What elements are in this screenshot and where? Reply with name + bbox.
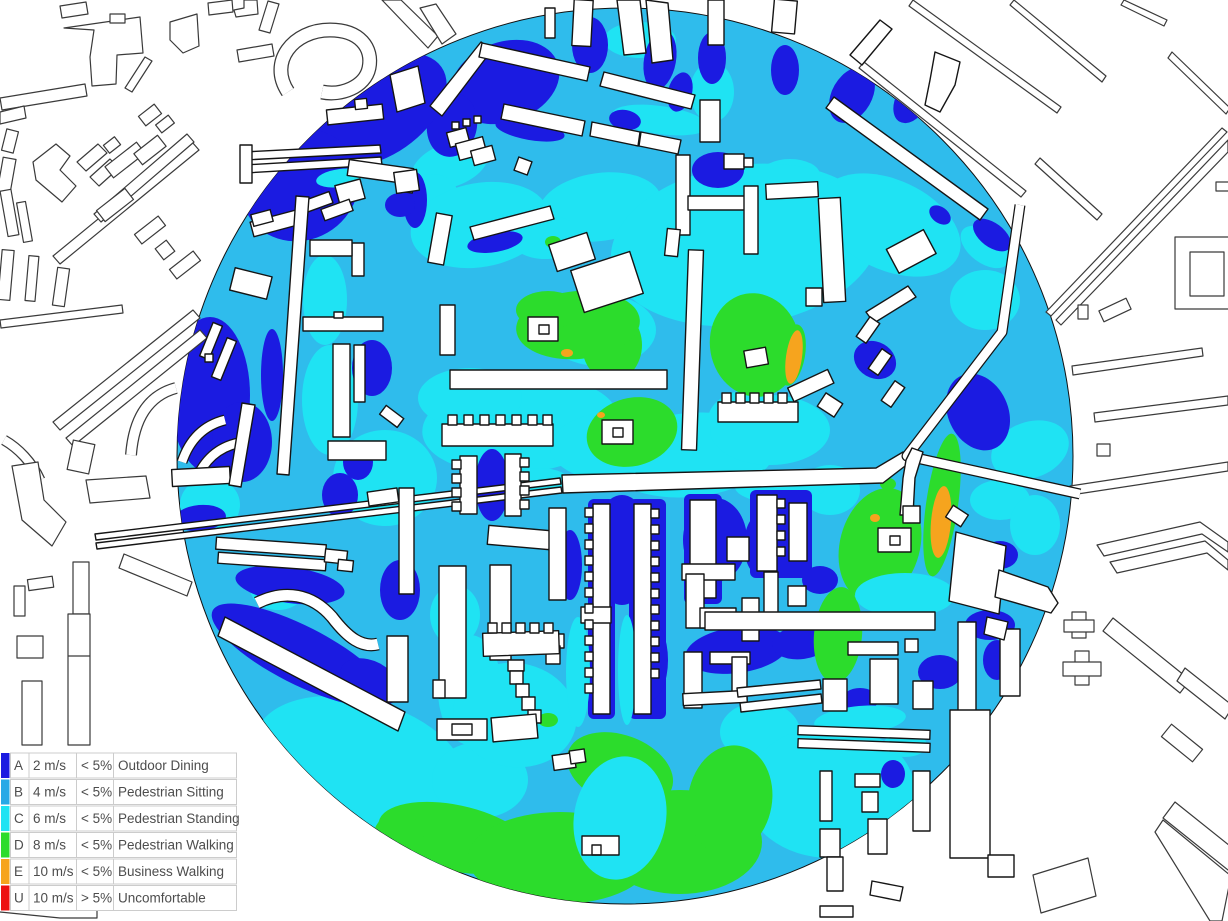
- svg-text:Pedestrian Walking: Pedestrian Walking: [118, 838, 234, 853]
- svg-text:8 m/s: 8 m/s: [33, 838, 66, 853]
- svg-text:Pedestrian Standing: Pedestrian Standing: [118, 811, 240, 826]
- svg-text:D: D: [14, 838, 24, 853]
- svg-text:A: A: [14, 758, 23, 773]
- svg-text:Outdoor Dining: Outdoor Dining: [118, 758, 209, 773]
- svg-text:< 5%: < 5%: [81, 811, 112, 826]
- svg-text:10 m/s: 10 m/s: [33, 891, 74, 906]
- svg-text:10 m/s: 10 m/s: [33, 864, 74, 879]
- svg-text:2 m/s: 2 m/s: [33, 758, 66, 773]
- svg-text:E: E: [14, 864, 23, 879]
- svg-text:< 5%: < 5%: [81, 758, 112, 773]
- svg-text:< 5%: < 5%: [81, 864, 112, 879]
- svg-text:Business Walking: Business Walking: [118, 864, 224, 879]
- svg-text:Uncomfortable: Uncomfortable: [118, 891, 206, 906]
- svg-text:< 5%: < 5%: [81, 785, 112, 800]
- svg-text:Pedestrian Sitting: Pedestrian Sitting: [118, 785, 224, 800]
- svg-text:< 5%: < 5%: [81, 838, 112, 853]
- svg-text:B: B: [14, 785, 23, 800]
- svg-text:C: C: [14, 811, 24, 826]
- svg-text:6 m/s: 6 m/s: [33, 811, 66, 826]
- svg-text:> 5%: > 5%: [81, 891, 112, 906]
- svg-text:4 m/s: 4 m/s: [33, 785, 66, 800]
- svg-text:U: U: [14, 891, 24, 906]
